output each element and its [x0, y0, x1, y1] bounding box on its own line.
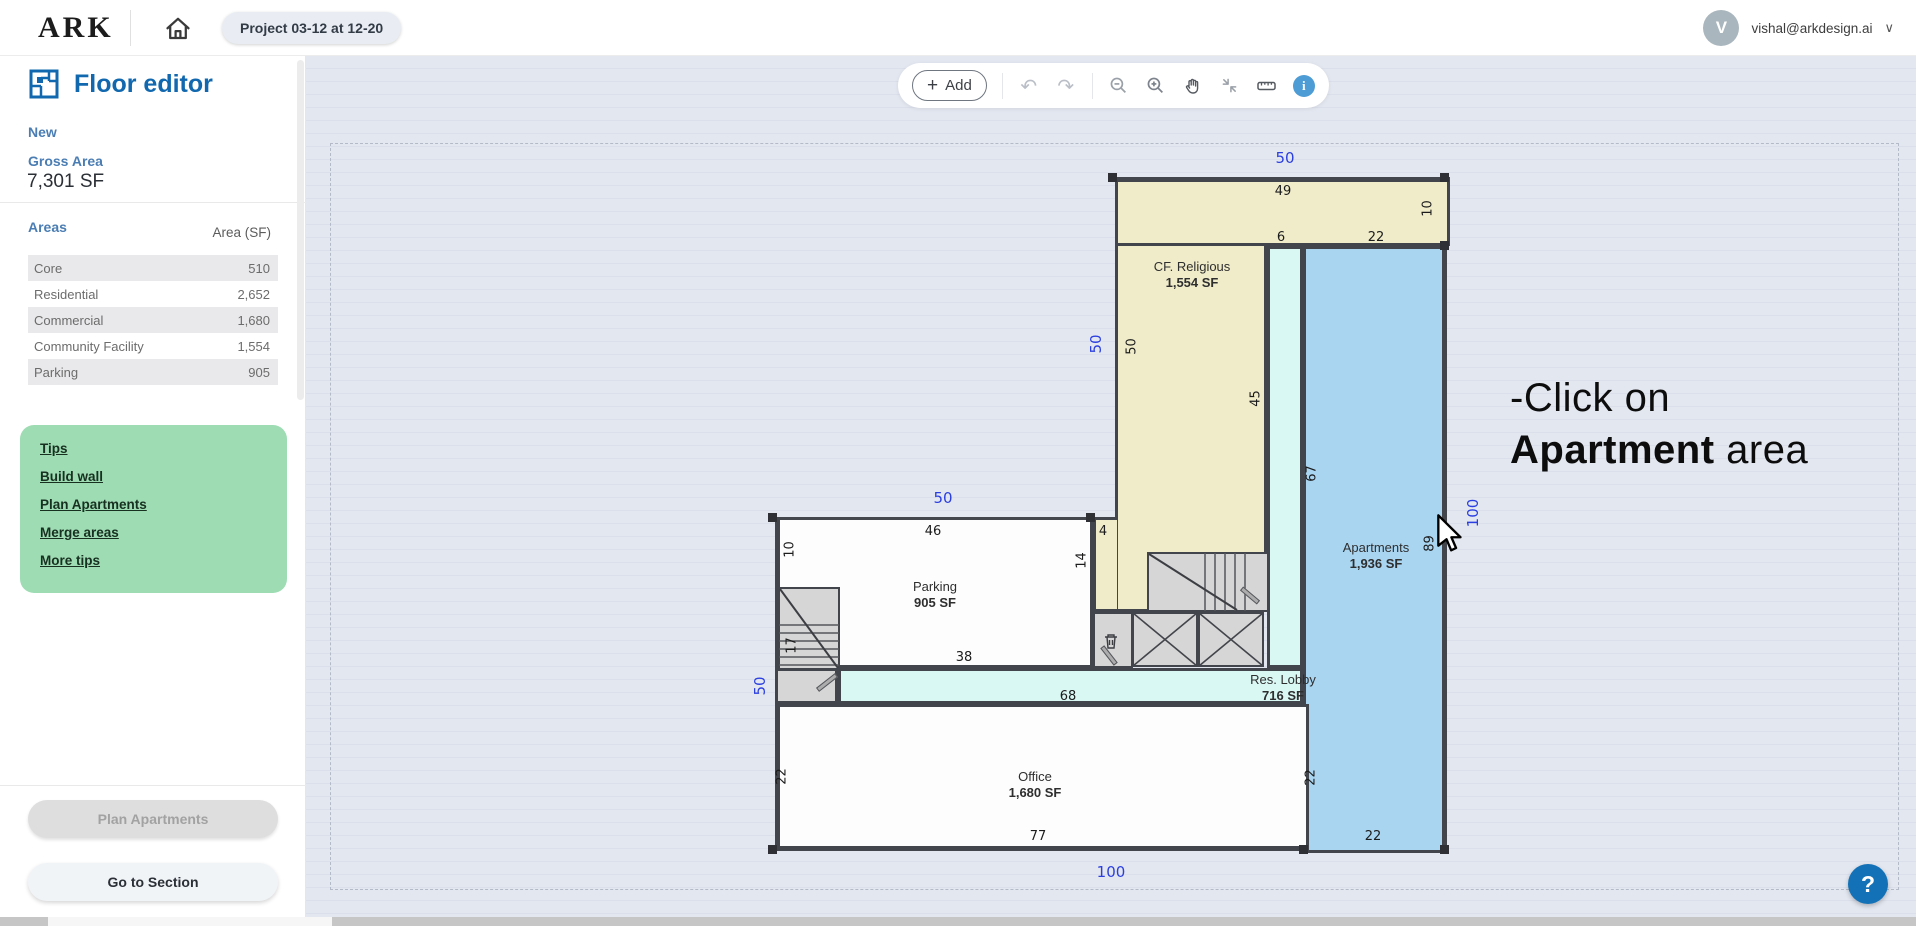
ark-logo: ARK — [38, 11, 114, 45]
tutorial-instruction: -Click on Apartment area — [1510, 372, 1808, 476]
table-row: Parking 905 — [28, 359, 278, 385]
tips-heading-link[interactable]: Tips — [40, 441, 267, 456]
dimension-label: 4 — [1083, 524, 1123, 539]
page-title: Floor editor — [74, 70, 213, 99]
tip-link-merge-areas[interactable]: Merge areas — [40, 525, 267, 540]
fit-view-button[interactable] — [1219, 75, 1241, 97]
horizontal-scrollbar[interactable] — [0, 917, 1916, 926]
areas-table: Core 510 Residential 2,652 Commercial 1,… — [28, 255, 278, 385]
wall-node — [1299, 845, 1308, 854]
area-value: 905 — [248, 365, 270, 380]
tip-link-more-tips[interactable]: More tips — [40, 553, 267, 568]
room-area: 716 SF — [1262, 688, 1304, 703]
gross-area-label: Gross Area — [28, 153, 103, 169]
add-button[interactable]: + Add — [912, 70, 987, 101]
home-button[interactable] — [163, 14, 193, 44]
wall-node — [1108, 173, 1117, 182]
dimension-label: 50 — [1125, 327, 1140, 367]
info-button[interactable]: i — [1293, 75, 1315, 97]
sidebar: Floor editor New Gross Area 7,301 SF Are… — [0, 56, 306, 917]
area-value: 510 — [248, 261, 270, 276]
scrollbar-thumb[interactable] — [48, 917, 332, 926]
dimension-label: 68 — [1048, 689, 1088, 704]
zoom-in-button[interactable] — [1145, 75, 1167, 97]
room-area: 1,936 SF — [1350, 556, 1403, 571]
elevator-icon — [1132, 612, 1198, 667]
dimension-label: 6 — [1261, 230, 1301, 245]
room-label-office: Office 1,680 SF — [965, 769, 1105, 801]
blue-dimension-label: 50 — [1261, 149, 1309, 167]
blue-dimension-label: 50 — [919, 489, 967, 507]
floor-plan-icon — [28, 68, 60, 100]
zoom-out-icon — [1109, 76, 1128, 95]
dimension-label: 14 — [1075, 541, 1090, 581]
blue-dimension-label: 50 — [1087, 320, 1105, 368]
divider — [1002, 73, 1003, 99]
dimension-label: 77 — [1018, 829, 1058, 844]
plan-apartments-button[interactable]: Plan Apartments — [28, 800, 278, 838]
area-name: Residential — [34, 287, 98, 302]
area-value: 1,554 — [237, 339, 270, 354]
zoom-out-button[interactable] — [1108, 75, 1130, 97]
project-breadcrumb-button[interactable]: Project 03-12 at 12-20 — [222, 12, 401, 44]
area-value: 1,680 — [237, 313, 270, 328]
room-area: 905 SF — [914, 595, 956, 610]
gross-area-value: 7,301 SF — [27, 171, 104, 193]
wall-node — [768, 513, 777, 522]
measure-button[interactable] — [1256, 75, 1278, 97]
plus-icon: + — [927, 76, 938, 95]
blue-dimension-label: 100 — [1087, 863, 1135, 881]
tip-link-plan-apartments[interactable]: Plan Apartments — [40, 497, 267, 512]
room-label-parking: Parking 905 SF — [865, 579, 1005, 611]
go-to-section-button[interactable]: Go to Section — [28, 863, 278, 901]
help-button[interactable]: ? — [1848, 864, 1888, 904]
table-row: Core 510 — [28, 255, 278, 281]
room-label-cf-religious: CF. Religious 1,554 SF — [1122, 259, 1262, 291]
canvas-toolbar: + Add ↶ ↷ i — [898, 63, 1329, 108]
trash-icon — [1103, 632, 1119, 650]
mouse-cursor-icon — [1436, 514, 1464, 554]
divider — [130, 10, 131, 46]
dimension-label: 45 — [1249, 379, 1264, 419]
dimension-label: 46 — [913, 524, 953, 539]
areas-label: Areas — [28, 219, 67, 235]
new-link[interactable]: New — [28, 124, 57, 140]
home-icon — [163, 14, 193, 44]
blue-dimension-label: 50 — [751, 662, 769, 710]
avatar: V — [1703, 10, 1739, 46]
pan-button[interactable] — [1182, 75, 1204, 97]
area-column-header: Area (SF) — [212, 225, 271, 240]
instruction-bold: Apartment — [1510, 428, 1715, 472]
dimension-label: 22 — [1356, 230, 1396, 245]
room-name: Office — [965, 769, 1105, 785]
dimension-label: 10 — [783, 530, 798, 570]
redo-button[interactable]: ↷ — [1055, 75, 1077, 97]
redo-icon: ↷ — [1057, 76, 1074, 96]
area-name: Core — [34, 261, 62, 276]
dimension-label: 67 — [1305, 454, 1320, 494]
room-lobby-shaft[interactable] — [1267, 246, 1303, 668]
dimension-label: 22 — [1353, 829, 1393, 844]
instruction-rest: area — [1715, 428, 1809, 472]
floor-editor-header: Floor editor — [28, 68, 213, 100]
undo-icon: ↶ — [1020, 76, 1037, 96]
dimension-label: 22 — [1304, 758, 1319, 798]
table-row: Commercial 1,680 — [28, 307, 278, 333]
dimension-label: 10 — [1421, 189, 1436, 229]
table-row: Community Facility 1,554 — [28, 333, 278, 359]
wall-node — [1440, 845, 1449, 854]
room-name: CF. Religious — [1122, 259, 1262, 275]
blue-dimension-label: 100 — [1464, 489, 1482, 537]
collapse-icon — [1221, 77, 1238, 94]
divider — [0, 785, 306, 786]
floor-plan-canvas[interactable]: + Add ↶ ↷ i — [306, 56, 1916, 926]
tips-panel: Tips Build wall Plan Apartments Merge ar… — [20, 425, 287, 593]
room-name: Parking — [865, 579, 1005, 595]
wall-node — [1440, 241, 1449, 250]
tip-link-build-wall[interactable]: Build wall — [40, 469, 267, 484]
divider — [0, 202, 306, 203]
project-name: Project 03-12 at 12-20 — [240, 20, 383, 36]
sidebar-scrollbar[interactable] — [297, 60, 304, 400]
user-email: vishal@arkdesign.ai — [1751, 21, 1872, 36]
instruction-line1: -Click on — [1510, 372, 1808, 424]
user-menu[interactable]: V vishal@arkdesign.ai ∨ — [1703, 8, 1894, 48]
area-name: Community Facility — [34, 339, 144, 354]
dimension-label: 17 — [785, 626, 800, 666]
hand-icon — [1184, 77, 1202, 95]
dimension-label: 38 — [944, 650, 984, 665]
room-name: Res. Lobby — [1213, 672, 1353, 688]
elevator-icon — [1198, 612, 1264, 667]
dimension-label: 22 — [775, 757, 790, 797]
add-label: Add — [945, 77, 972, 94]
dimension-label: 49 — [1263, 184, 1303, 199]
divider — [1092, 73, 1093, 99]
wall-node — [1440, 173, 1449, 182]
area-value: 2,652 — [237, 287, 270, 302]
ruler-icon — [1256, 77, 1277, 95]
room-entry-vestibule[interactable] — [775, 668, 838, 704]
undo-button[interactable]: ↶ — [1018, 75, 1040, 97]
zoom-in-icon — [1146, 76, 1165, 95]
chevron-down-icon: ∨ — [1884, 20, 1894, 36]
room-area: 1,680 SF — [1009, 785, 1062, 800]
room-area: 1,554 SF — [1166, 275, 1219, 290]
room-label-res-lobby: Res. Lobby 716 SF — [1213, 672, 1353, 704]
area-name: Commercial — [34, 313, 103, 328]
table-row: Residential 2,652 — [28, 281, 278, 307]
stairs-icon — [1147, 552, 1269, 612]
area-name: Parking — [34, 365, 78, 380]
wall-node — [768, 845, 777, 854]
instruction-line2: Apartment area — [1510, 424, 1808, 476]
top-bar: ARK Project 03-12 at 12-20 V vishal@arkd… — [0, 0, 1916, 56]
wall-node — [1086, 513, 1095, 522]
